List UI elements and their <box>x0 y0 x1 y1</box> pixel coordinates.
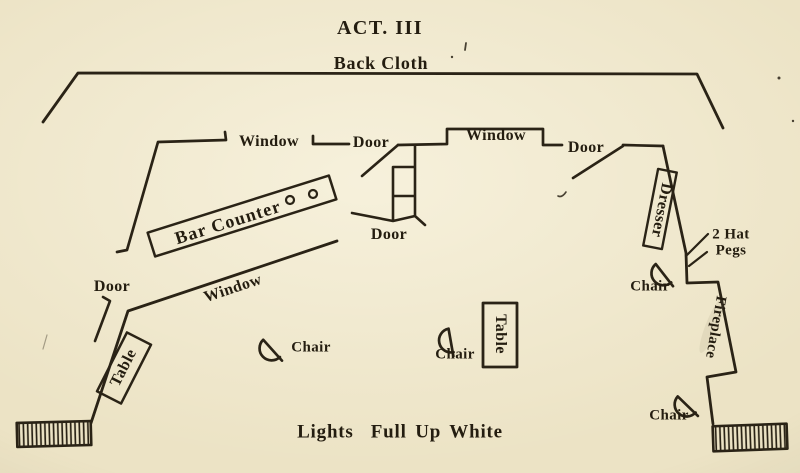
chair-left-icon <box>255 340 283 368</box>
chair-fireplace-label: Chair <box>649 409 689 424</box>
bar-counter-tap-2 <box>309 190 317 198</box>
chair-center-label: Chair <box>435 348 475 363</box>
window-upper-middle-label: Window <box>466 128 526 144</box>
window-upper-left-label: Window <box>239 134 299 150</box>
hat-pegs-label: 2 Hat Pegs <box>712 227 749 259</box>
door-leaf-left <box>95 297 110 341</box>
door-stairs-label: Door <box>371 227 407 243</box>
upper-right-wall <box>623 145 663 146</box>
steps-left <box>17 421 92 447</box>
upper-wall-bracket <box>313 136 349 144</box>
hat-pegs-line1: 2 Hat <box>712 227 749 243</box>
back-cloth-line <box>43 73 723 128</box>
hat-peg-lines <box>686 234 708 266</box>
stair-unit <box>352 145 425 225</box>
bar-counter-tap-1 <box>286 196 294 204</box>
lights-note: Lights Full Up White <box>297 423 503 442</box>
steps-right <box>713 424 788 452</box>
act-title: ACT. III <box>337 18 423 38</box>
door-upper-left-label: Door <box>353 135 389 151</box>
hat-pegs-line2: Pegs <box>712 243 749 259</box>
back-cloth-label: Back Cloth <box>334 54 429 72</box>
chair-left-label: Chair <box>291 341 331 356</box>
table-center-label: Table <box>492 314 508 354</box>
stage-plan-page: ACT. III Back Cloth Window Door Window D… <box>0 0 800 473</box>
door-upper-right-label: Door <box>568 140 604 156</box>
door-left-label: Door <box>94 279 130 295</box>
chair-dresser-label: Chair <box>630 280 670 295</box>
